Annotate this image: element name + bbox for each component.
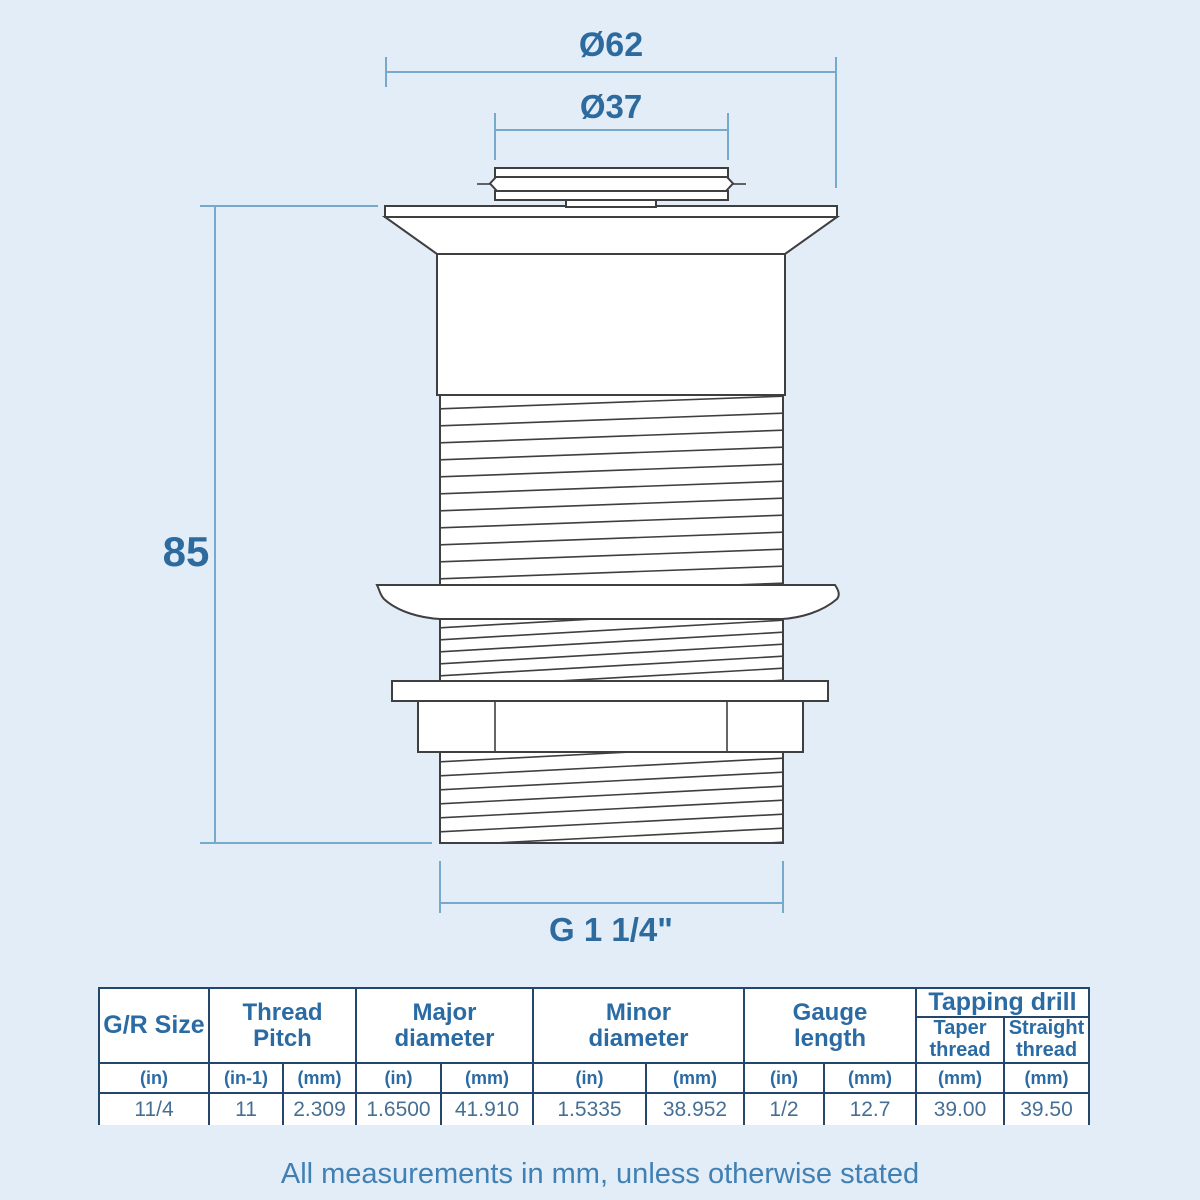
dim-label-thread-size: G 1 1/4" <box>549 911 673 948</box>
value-cell: 1.5335 <box>533 1093 646 1125</box>
product-dimension-sheet: Ø62 Ø37 85 G 1 1/4" <box>0 0 1200 1200</box>
unit-cell: (in) <box>356 1063 441 1093</box>
dimension-overall-height: 85 <box>163 206 432 843</box>
backnut-washer-plate <box>392 681 828 701</box>
value-cell: 11/4 <box>99 1093 209 1125</box>
sealing-washer <box>377 585 839 619</box>
dim-label-overall-height: 85 <box>163 528 210 575</box>
unit-cell: (mm) <box>441 1063 533 1093</box>
unit-cell: (in-1) <box>209 1063 283 1093</box>
value-cell: 1.6500 <box>356 1093 441 1125</box>
unit-cell: (in) <box>744 1063 824 1093</box>
backnut <box>392 681 828 752</box>
waste-body <box>437 254 785 395</box>
value-cell: 39.50 <box>1004 1093 1089 1125</box>
value-cell: 2.309 <box>283 1093 356 1125</box>
cap-lower-disc <box>495 191 728 200</box>
measurement-note: All measurements in mm, unless otherwise… <box>0 1158 1200 1191</box>
unit-cell: (mm) <box>1004 1063 1089 1093</box>
unit-cell: (in) <box>99 1063 209 1093</box>
col-header-gr-size: G/R Size <box>99 988 209 1063</box>
flange-skirt <box>385 217 837 254</box>
backnut-body <box>418 701 803 752</box>
col-header-thread-pitch: Thread Pitch <box>209 988 356 1063</box>
value-cell: 12.7 <box>824 1093 916 1125</box>
value-cell: 1/2 <box>744 1093 824 1125</box>
technical-drawing: Ø62 Ø37 85 G 1 1/4" <box>0 0 1200 970</box>
cap-top-disc <box>495 168 728 177</box>
value-cell: 11 <box>209 1093 283 1125</box>
col-header-gauge-length: Gauge length <box>744 988 916 1063</box>
top-flange <box>385 206 837 254</box>
thread-spec-table: G/R Size Thread Pitch Major diameter Min… <box>98 987 1090 1125</box>
dimension-thread-size: G 1 1/4" <box>440 861 783 948</box>
col-header-tapping-drill: Tapping drill <box>916 988 1089 1017</box>
unit-cell: (mm) <box>824 1063 916 1093</box>
unit-cell: (mm) <box>916 1063 1004 1093</box>
col-header-major-diameter: Major diameter <box>356 988 533 1063</box>
value-cell: 39.00 <box>916 1093 1004 1125</box>
col-header-straight-thread: Straight thread <box>1004 1017 1089 1063</box>
cap-stem <box>566 200 656 207</box>
dimension-inner-diameter: Ø37 <box>495 88 728 160</box>
unit-cell: (mm) <box>283 1063 356 1093</box>
dim-label-inner-diameter: Ø37 <box>580 88 642 125</box>
dim-label-outer-diameter: Ø62 <box>579 26 643 64</box>
unit-cell: (mm) <box>646 1063 744 1093</box>
value-cell: 41.910 <box>441 1093 533 1125</box>
unit-cell: (in) <box>533 1063 646 1093</box>
value-cell: 38.952 <box>646 1093 744 1125</box>
col-header-minor-diameter: Minor diameter <box>533 988 744 1063</box>
plug-cap <box>477 168 746 207</box>
cap-seal-band <box>490 176 733 191</box>
thread-section-upper <box>436 379 787 596</box>
col-header-taper-thread: Taper thread <box>916 1017 1004 1063</box>
thread-section-lower <box>436 744 787 860</box>
